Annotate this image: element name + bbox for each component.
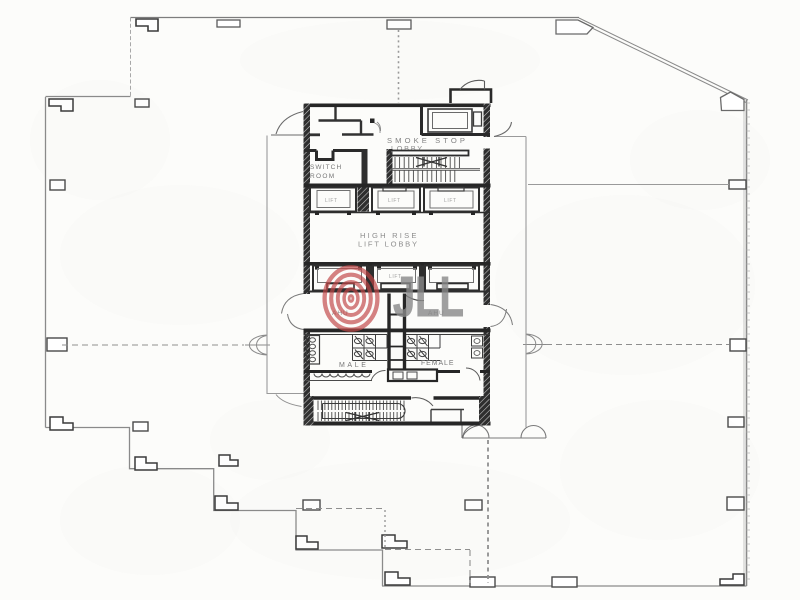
- svg-text:JLL: JLL: [393, 265, 464, 329]
- svg-text:SWITCH: SWITCH: [310, 164, 342, 171]
- svg-text:LIFT: LIFT: [444, 198, 457, 204]
- svg-text:LIFT: LIFT: [325, 198, 338, 204]
- svg-text:ROOM: ROOM: [310, 173, 335, 180]
- svg-text:FEMALE: FEMALE: [421, 360, 454, 367]
- svg-text:LIFT LOBBY: LIFT LOBBY: [358, 240, 419, 249]
- svg-text:LIFT: LIFT: [388, 198, 401, 204]
- svg-text:LOBBY: LOBBY: [391, 144, 424, 153]
- svg-text:MALE: MALE: [339, 362, 368, 369]
